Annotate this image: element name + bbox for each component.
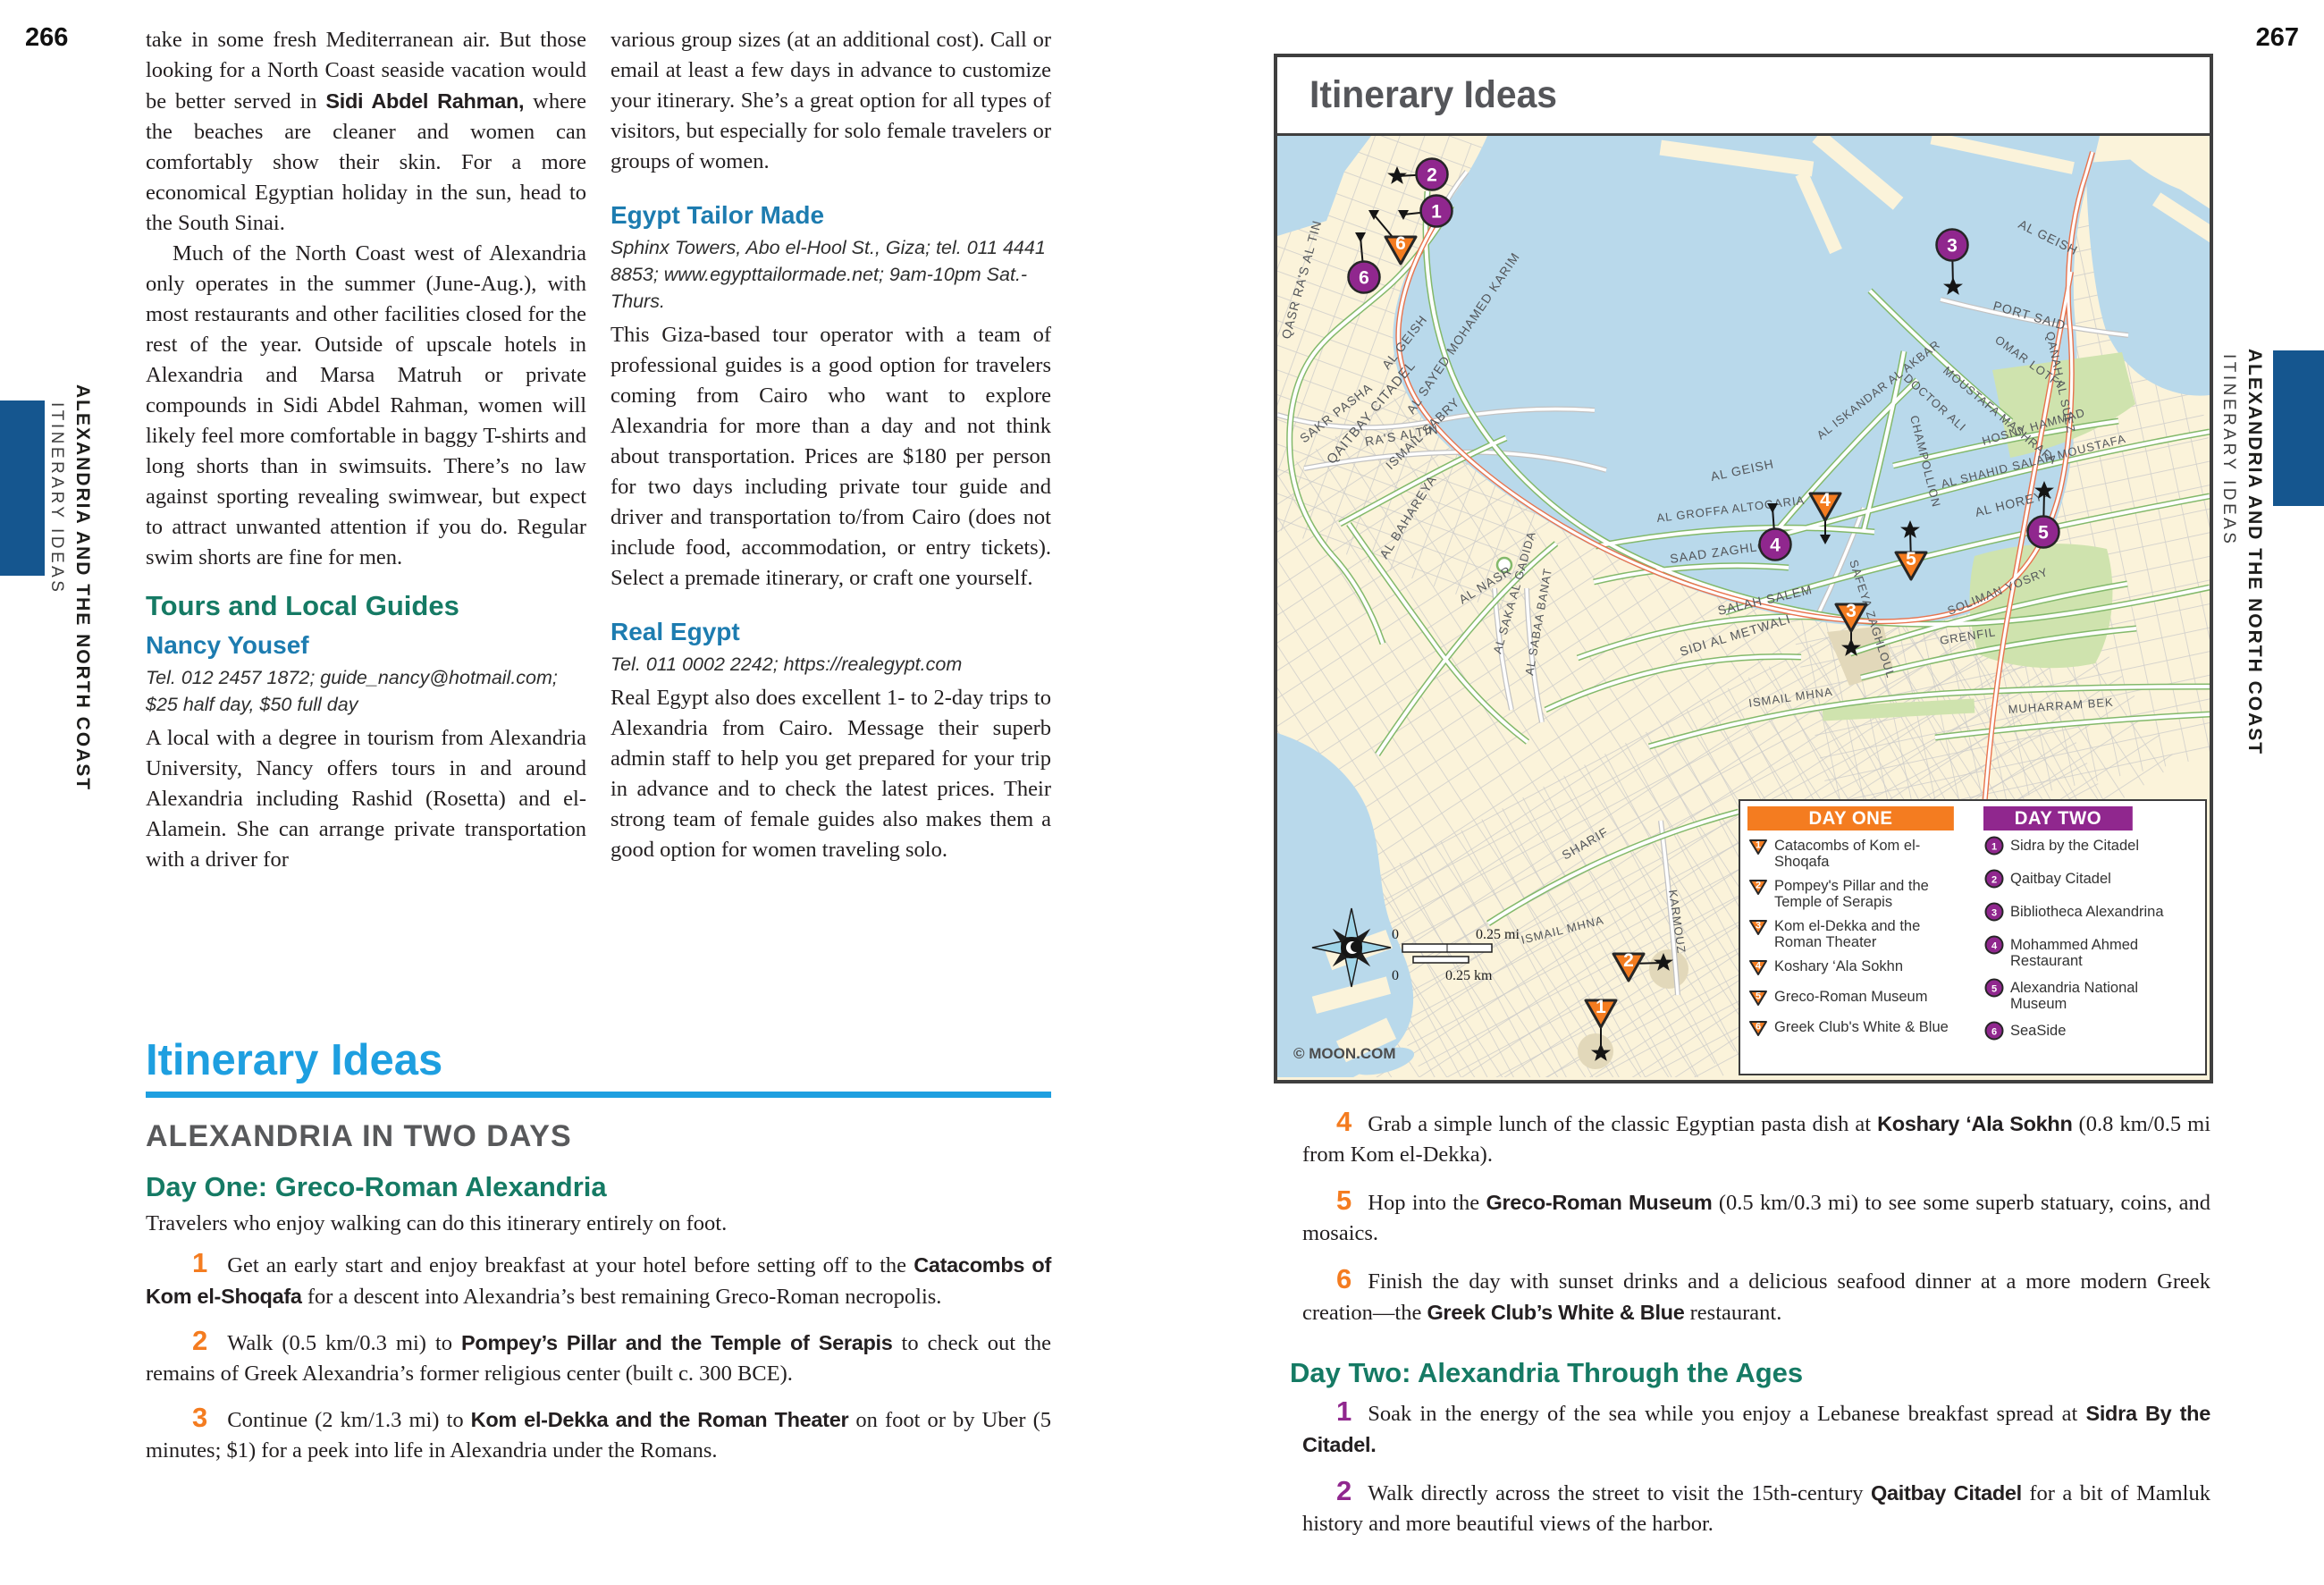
day-one-steps-continued: 4Grab a simple lunch of the classic Egyp… bbox=[1302, 1107, 2210, 1344]
day-two-legend-icon: 5 bbox=[1983, 977, 2005, 999]
legend-item: 3Kom el-Dekka and the Roman Theater bbox=[1747, 917, 1976, 950]
svg-text:0.25 km: 0.25 km bbox=[1445, 968, 1493, 983]
margin-series-right: ALEXANDRIA AND THE NORTH COAST bbox=[2244, 349, 2265, 755]
step-number: 3 bbox=[192, 1402, 207, 1433]
map-legend: DAY ONE 1Catacombs of Kom el-Shoqafa2Pom… bbox=[1739, 799, 2207, 1075]
page-number-right: 267 bbox=[2256, 23, 2299, 53]
svg-text:5: 5 bbox=[2038, 523, 2049, 544]
svg-text:4: 4 bbox=[1820, 490, 1831, 510]
itinerary-step: 1Get an early start and enjoy breakfast … bbox=[146, 1248, 1051, 1312]
egypt-tailor-made-heading: Egypt Tailor Made bbox=[610, 200, 1051, 231]
day-two-legend-icon: 6 bbox=[1983, 1020, 2005, 1041]
blue-rule bbox=[146, 1092, 1051, 1098]
legend-item-label: Alexandria National Museum bbox=[2010, 979, 2193, 1012]
margin-tab-right bbox=[2273, 350, 2324, 506]
margin-section-right: ITINERARY IDEAS bbox=[2219, 354, 2238, 546]
svg-text:6: 6 bbox=[1359, 268, 1369, 289]
alexandria-two-days-subtitle: ALEXANDRIA IN TWO DAYS bbox=[146, 1119, 572, 1154]
svg-text:6: 6 bbox=[1395, 233, 1406, 254]
margin-series-left: ALEXANDRIA AND THE NORTH COAST bbox=[72, 384, 93, 791]
svg-text:0: 0 bbox=[1392, 968, 1399, 983]
left-column-1: take in some fresh Mediterranean air. Bu… bbox=[146, 25, 586, 875]
real-egypt-contact: Tel. 011 0002 2242; https://realegypt.co… bbox=[610, 651, 1051, 678]
legend-item: 4Mohammed Ahmed Restaurant bbox=[1983, 936, 2202, 969]
itinerary-map: Itinerary Ideas bbox=[1274, 54, 2213, 1083]
legend-item-label: Koshary ‘Ala Sokhn bbox=[1774, 957, 1903, 974]
legend-item: 1Catacombs of Kom el-Shoqafa bbox=[1747, 837, 1976, 870]
itinerary-step: 6Finish the day with sunset drinks and a… bbox=[1302, 1264, 2210, 1328]
svg-text:6: 6 bbox=[1991, 1027, 1997, 1038]
svg-text:2: 2 bbox=[1427, 165, 1437, 186]
itinerary-step: 5Hop into the Greco-Roman Museum (0.5 km… bbox=[1302, 1185, 2210, 1249]
svg-text:5: 5 bbox=[1906, 549, 1916, 569]
svg-text:1: 1 bbox=[1596, 997, 1606, 1017]
legend-item: 5Greco-Roman Museum bbox=[1747, 988, 1976, 1011]
svg-text:1: 1 bbox=[1991, 842, 1997, 853]
day-two-heading: Day Two: Alexandria Through the Ages bbox=[1290, 1357, 1803, 1389]
svg-text:2: 2 bbox=[1623, 950, 1634, 971]
legend-day-one-header: DAY ONE bbox=[1747, 806, 1954, 830]
map-canvas: QAITBAY CITADELQASR RA'S AL TINAL GEISHA… bbox=[1277, 136, 2210, 1077]
day-one-heading: Day One: Greco-Roman Alexandria bbox=[146, 1171, 607, 1203]
step-number: 2 bbox=[192, 1325, 207, 1356]
legend-day-two-header: DAY TWO bbox=[1983, 806, 2133, 830]
legend-item: 6SeaSide bbox=[1983, 1022, 2202, 1045]
svg-text:3: 3 bbox=[1947, 236, 1958, 257]
legend-item: 2Qaitbay Citadel bbox=[1983, 870, 2202, 893]
nancy-contact: Tel. 012 2457 1872; guide_nancy@hotmail.… bbox=[146, 664, 586, 718]
margin-section-left: ITINERARY IDEAS bbox=[46, 402, 66, 594]
step-number: 1 bbox=[1336, 1395, 1351, 1427]
legend-item-label: Mohammed Ahmed Restaurant bbox=[2010, 936, 2193, 969]
day-two-legend-icon: 4 bbox=[1983, 934, 2005, 956]
legend-day-one: DAY ONE 1Catacombs of Kom el-Shoqafa2Pom… bbox=[1740, 801, 1976, 1074]
day-one-legend-icon: 3 bbox=[1747, 915, 1769, 937]
svg-text:6: 6 bbox=[1756, 1022, 1761, 1033]
legend-item: 5Alexandria National Museum bbox=[1983, 979, 2202, 1012]
page-number-left: 266 bbox=[25, 23, 68, 53]
margin-tab-left bbox=[0, 400, 45, 576]
legend-item-label: Kom el-Dekka and the Roman Theater bbox=[1774, 917, 1958, 950]
svg-text:3: 3 bbox=[1756, 921, 1761, 932]
paragraph: This Giza-based tour operator with a tea… bbox=[610, 320, 1051, 594]
map-title: Itinerary Ideas bbox=[1309, 73, 1557, 117]
legend-day-two: DAY TWO 1Sidra by the Citadel2Qaitbay Ci… bbox=[1976, 801, 2202, 1074]
svg-text:5: 5 bbox=[1756, 991, 1761, 1002]
itinerary-step: 3Continue (2 km/1.3 mi) to Kom el-Dekka … bbox=[146, 1403, 1051, 1466]
legend-item: 2Pompey's Pillar and the Temple of Serap… bbox=[1747, 877, 1976, 910]
day-one-legend-icon: 6 bbox=[1747, 1016, 1769, 1038]
itinerary-step: 4Grab a simple lunch of the classic Egyp… bbox=[1302, 1107, 2210, 1170]
legend-item-label: Pompey's Pillar and the Temple of Serapi… bbox=[1774, 877, 1958, 910]
paragraph: Much of the North Coast west of Alexandr… bbox=[146, 239, 586, 573]
legend-item: 6Greek Club's White & Blue bbox=[1747, 1018, 1976, 1041]
book-spread: 266 ITINERARY IDEAS ALEXANDRIA AND THE N… bbox=[0, 0, 2324, 1585]
day-two-legend-icon: 2 bbox=[1983, 868, 2005, 889]
tours-heading: Tours and Local Guides bbox=[146, 591, 586, 621]
real-egypt-heading: Real Egypt bbox=[610, 617, 1051, 647]
svg-text:2: 2 bbox=[1991, 875, 1997, 886]
paragraph: A local with a degree in tourism from Al… bbox=[146, 723, 586, 875]
itinerary-ideas-title: Itinerary Ideas bbox=[146, 1035, 442, 1085]
day-one-legend-icon: 4 bbox=[1747, 956, 1769, 977]
svg-text:4: 4 bbox=[1756, 961, 1762, 972]
legend-item-label: Greco-Roman Museum bbox=[1774, 988, 1927, 1005]
nancy-heading: Nancy Yousef bbox=[146, 630, 586, 661]
svg-text:3: 3 bbox=[1991, 908, 1997, 919]
day-one-legend-icon: 1 bbox=[1747, 835, 1769, 856]
step-number: 6 bbox=[1336, 1263, 1351, 1294]
step-number: 4 bbox=[1336, 1106, 1351, 1137]
map-title-bar: Itinerary Ideas bbox=[1277, 57, 2210, 136]
day-one-legend-icon: 5 bbox=[1747, 986, 1769, 1007]
itinerary-step: 2Walk (0.5 km/0.3 mi) to Pompey’s Pillar… bbox=[146, 1326, 1051, 1389]
legend-item-label: Sidra by the Citadel bbox=[2010, 837, 2139, 854]
legend-item-label: Qaitbay Citadel bbox=[2010, 870, 2111, 887]
legend-item-label: Greek Club's White & Blue bbox=[1774, 1018, 1949, 1035]
svg-text:0.25 mi: 0.25 mi bbox=[1476, 927, 1520, 942]
day-one-legend-icon: 2 bbox=[1747, 875, 1769, 897]
svg-text:2: 2 bbox=[1756, 881, 1761, 891]
day-two-legend-icon: 3 bbox=[1983, 901, 2005, 923]
step-number: 2 bbox=[1336, 1475, 1351, 1506]
svg-text:5: 5 bbox=[1991, 984, 1997, 995]
svg-text:1: 1 bbox=[1756, 840, 1761, 851]
svg-text:1: 1 bbox=[1431, 202, 1442, 223]
day-one-intro: Travelers who enjoy walking can do this … bbox=[146, 1209, 1051, 1239]
paragraph: Real Egypt also does excellent 1- to 2-d… bbox=[610, 683, 1051, 865]
step-number: 1 bbox=[192, 1247, 207, 1278]
paragraph: various group sizes (at an additional co… bbox=[610, 25, 1051, 177]
svg-text:3: 3 bbox=[1846, 601, 1857, 621]
legend-item-label: Catacombs of Kom el-Shoqafa bbox=[1774, 837, 1958, 870]
itinerary-step: 2Walk directly across the street to visi… bbox=[1302, 1476, 2210, 1539]
svg-text:4: 4 bbox=[1991, 941, 1998, 952]
day-two-legend-icon: 1 bbox=[1983, 835, 2005, 856]
legend-item-label: Bibliotheca Alexandrina bbox=[2010, 903, 2164, 920]
egypt-tailor-made-contact: Sphinx Towers, Abo el-Hool St., Giza; te… bbox=[610, 234, 1051, 315]
legend-item-label: SeaSide bbox=[2010, 1022, 2066, 1039]
svg-text:4: 4 bbox=[1770, 535, 1781, 556]
day-one-steps: 1Get an early start and enjoy breakfast … bbox=[146, 1248, 1051, 1480]
day-two-steps: 1Soak in the energy of the sea while you… bbox=[1302, 1396, 2210, 1555]
paragraph: take in some fresh Mediterranean air. Bu… bbox=[146, 25, 586, 239]
legend-item: 3Bibliotheca Alexandrina bbox=[1983, 903, 2202, 926]
map-copyright: © MOON.COM bbox=[1293, 1045, 1396, 1062]
svg-text:0: 0 bbox=[1392, 927, 1399, 942]
left-column-2: various group sizes (at an additional co… bbox=[610, 25, 1051, 865]
step-number: 5 bbox=[1336, 1185, 1351, 1216]
legend-item: 1Sidra by the Citadel bbox=[1983, 837, 2202, 860]
itinerary-step: 1Soak in the energy of the sea while you… bbox=[1302, 1396, 2210, 1461]
legend-item: 4Koshary ‘Ala Sokhn bbox=[1747, 957, 1976, 981]
